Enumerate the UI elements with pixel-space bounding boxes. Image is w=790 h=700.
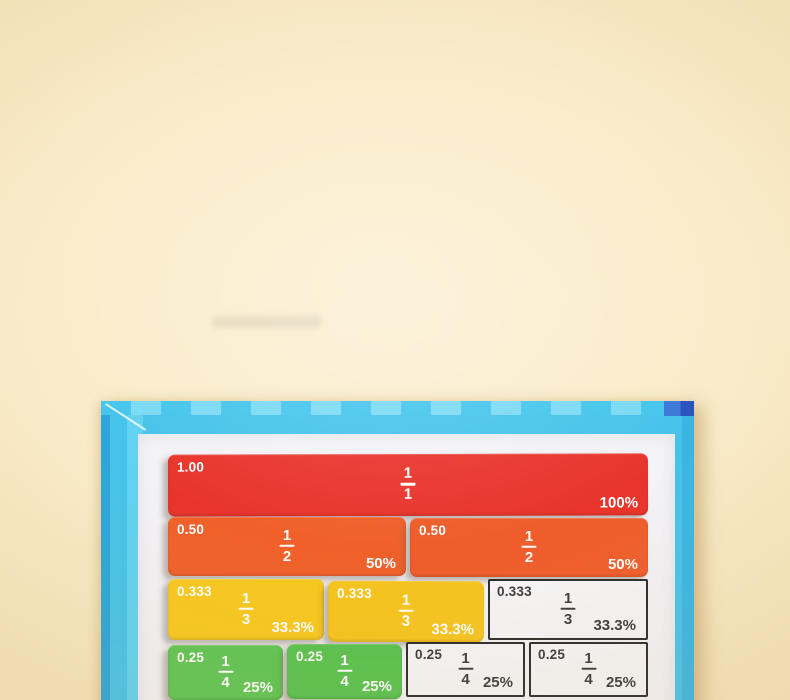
fraction-value: 14 bbox=[458, 650, 473, 687]
decimal-label: 0.25 bbox=[415, 647, 442, 662]
printed-cell-1-3: 0.3331333.3% bbox=[488, 579, 648, 640]
fraction-numerator: 1 bbox=[584, 650, 592, 666]
printed-cell-1-4: 0.251425% bbox=[529, 642, 648, 697]
board-checker-edge bbox=[101, 401, 694, 415]
fraction-tile-1-3: 0.3331333.3% bbox=[328, 581, 484, 643]
decimal-label: 0.333 bbox=[337, 586, 372, 601]
fraction-denominator: 3 bbox=[402, 613, 410, 629]
board-corner-patch bbox=[664, 401, 694, 416]
fraction-row-quarters: 0.251425%0.251425%0.251425%0.251425% bbox=[168, 643, 648, 698]
fraction-value: 12 bbox=[280, 527, 295, 564]
printed-cell-1-4: 0.251425% bbox=[406, 642, 525, 697]
fraction-numerator: 1 bbox=[242, 590, 250, 606]
fraction-value: 12 bbox=[522, 528, 537, 565]
decimal-label: 0.333 bbox=[497, 584, 532, 599]
fraction-denominator: 4 bbox=[461, 672, 469, 688]
fraction-numerator: 1 bbox=[404, 466, 412, 482]
fraction-numerator: 1 bbox=[525, 528, 533, 544]
percent-label: 25% bbox=[362, 678, 392, 695]
decimal-label: 0.25 bbox=[177, 650, 204, 665]
fraction-row-halves: 0.501250%0.501250% bbox=[168, 517, 648, 576]
fraction-board: 1.0011100%0.501250%0.501250%0.3331333.3%… bbox=[101, 401, 694, 700]
fraction-numerator: 1 bbox=[340, 652, 348, 668]
fraction-value: 14 bbox=[218, 653, 233, 690]
fraction-tile-1-3: 0.3331333.3% bbox=[168, 579, 324, 640]
decimal-label: 0.50 bbox=[419, 523, 446, 538]
fraction-denominator: 4 bbox=[340, 674, 348, 690]
fraction-tile-1-4: 0.251425% bbox=[168, 645, 283, 700]
fraction-value: 13 bbox=[561, 590, 576, 627]
fraction-numerator: 1 bbox=[283, 527, 291, 543]
fraction-grid: 1.0011100%0.501250%0.501250%0.3331333.3%… bbox=[168, 454, 648, 698]
percent-label: 33.3% bbox=[271, 619, 314, 636]
fraction-denominator: 2 bbox=[283, 549, 291, 565]
decimal-label: 0.25 bbox=[538, 647, 565, 662]
percent-label: 25% bbox=[483, 674, 513, 691]
fraction-denominator: 2 bbox=[525, 550, 533, 566]
fraction-value: 14 bbox=[581, 650, 596, 687]
fraction-value: 14 bbox=[337, 652, 352, 689]
fraction-tile-1-1: 1.0011100% bbox=[168, 453, 648, 516]
fraction-numerator: 1 bbox=[221, 653, 229, 669]
percent-label: 100% bbox=[600, 494, 638, 511]
decimal-label: 0.25 bbox=[296, 649, 323, 664]
fraction-denominator: 3 bbox=[564, 612, 572, 628]
fraction-denominator: 4 bbox=[221, 675, 229, 691]
decimal-label: 0.333 bbox=[177, 584, 212, 599]
percent-label: 50% bbox=[608, 556, 638, 573]
fraction-denominator: 3 bbox=[242, 612, 250, 628]
fraction-numerator: 1 bbox=[564, 590, 572, 606]
fraction-value: 13 bbox=[239, 590, 254, 627]
decimal-label: 1.00 bbox=[177, 460, 204, 475]
photo-scene: 1.0011100%0.501250%0.501250%0.3331333.3%… bbox=[0, 0, 790, 700]
fraction-row-thirds: 0.3331333.3%0.3331333.3%0.3331333.3% bbox=[168, 579, 648, 640]
fraction-row-wholes: 1.0011100% bbox=[168, 454, 648, 516]
percent-label: 33.3% bbox=[593, 617, 636, 634]
fraction-denominator: 1 bbox=[404, 487, 412, 503]
percent-label: 25% bbox=[243, 679, 273, 696]
fraction-tile-1-2: 0.501250% bbox=[168, 517, 406, 576]
fraction-value: 11 bbox=[400, 466, 415, 503]
percent-label: 50% bbox=[366, 555, 396, 572]
fraction-value: 13 bbox=[398, 592, 413, 629]
decimal-label: 0.50 bbox=[177, 522, 204, 537]
fraction-tile-1-2: 0.501250% bbox=[410, 518, 648, 577]
board-surface: 1.0011100%0.501250%0.501250%0.3331333.3%… bbox=[138, 434, 675, 700]
percent-label: 33.3% bbox=[431, 621, 474, 638]
fraction-denominator: 4 bbox=[584, 672, 592, 688]
percent-label: 25% bbox=[606, 674, 636, 691]
fraction-numerator: 1 bbox=[402, 592, 410, 608]
fraction-numerator: 1 bbox=[461, 650, 469, 666]
faint-smudge bbox=[212, 316, 322, 328]
fraction-tile-1-4: 0.251425% bbox=[287, 644, 402, 699]
